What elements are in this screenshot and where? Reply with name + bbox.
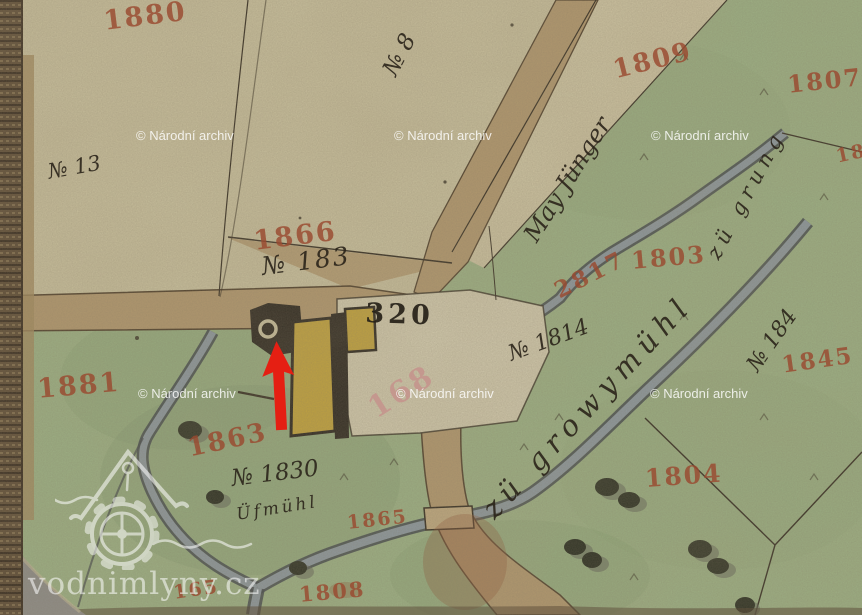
texture-grain — [0, 0, 862, 615]
historical-map-scan: 1880 № 8 № 13 1809 1807 180 May Jünger z… — [0, 0, 862, 615]
map-artwork — [0, 0, 862, 615]
